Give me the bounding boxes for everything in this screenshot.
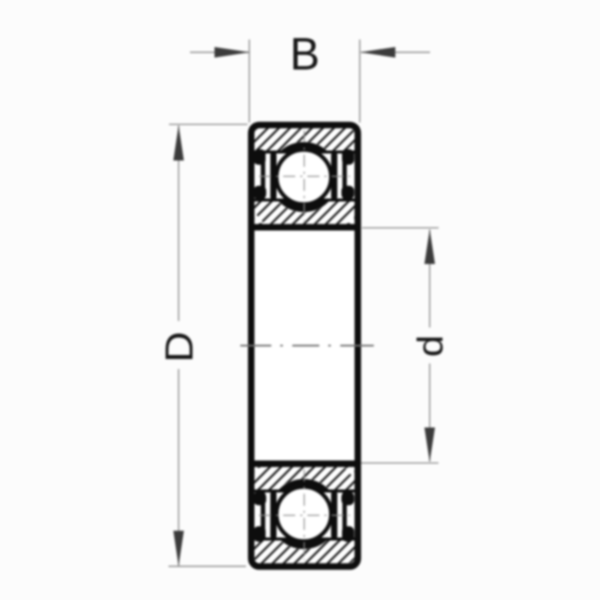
svg-text:B: B	[290, 29, 320, 80]
svg-text:d: d	[411, 335, 451, 357]
svg-text:D: D	[158, 331, 201, 362]
